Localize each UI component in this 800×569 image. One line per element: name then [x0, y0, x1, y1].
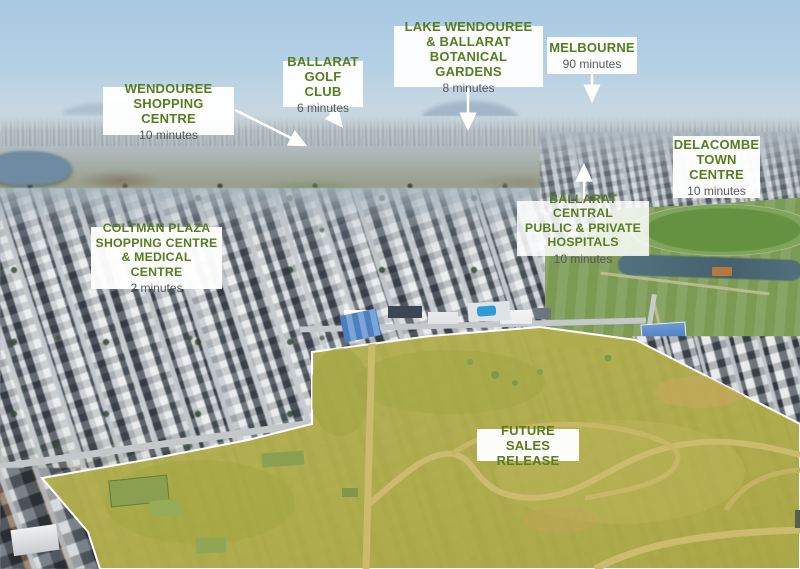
label-title-line: BALLARAT CENTRAL	[520, 192, 646, 221]
label-title-line: RELEASE	[497, 453, 560, 468]
label-lake-wendouree-botanical-gardens: LAKE WENDOUREE & BALLARAT BOTANICAL GARD…	[394, 26, 543, 87]
label-title-line: GOLF CLUB	[286, 69, 360, 99]
label-title-line: COLTMAN PLAZA	[103, 221, 211, 236]
label-title-line: & BALLARAT	[426, 34, 511, 49]
label-title-line: TOWN	[696, 152, 736, 167]
label-title-line: DELACOMBE	[674, 137, 760, 152]
label-ballarat-golf-club: BALLARAT GOLF CLUB 6 minutes	[283, 61, 363, 107]
label-title-line: MELBOURNE	[549, 40, 635, 55]
label-drive-time: 10 minutes	[554, 253, 613, 266]
label-title-line: SHOPPING CENTRE	[96, 236, 218, 251]
label-wendouree-shopping-centre: WENDOUREE SHOPPING CENTRE 10 minutes	[103, 87, 234, 135]
label-title-line: CENTRE	[689, 167, 744, 182]
arrow-wendouree	[235, 110, 303, 144]
label-drive-time: 2 minutes	[130, 282, 182, 295]
label-drive-time: 10 minutes	[687, 185, 746, 198]
label-drive-time: 6 minutes	[297, 102, 349, 115]
label-title-line: HOSPITALS	[547, 235, 618, 250]
label-title-line: WENDOUREE	[125, 81, 213, 96]
label-title-line: BALLARAT	[287, 54, 358, 69]
label-future-sales-release: FUTURE SALES RELEASE	[477, 429, 579, 461]
label-drive-time: 10 minutes	[139, 129, 198, 142]
label-title-line: FUTURE SALES	[480, 423, 576, 453]
label-title-line: LAKE WENDOUREE	[405, 19, 533, 34]
label-melbourne: MELBOURNE 90 minutes	[547, 37, 637, 74]
label-delacombe-town-centre: DELACOMBE TOWN CENTRE 10 minutes	[673, 136, 760, 198]
label-title-line: PUBLIC & PRIVATE	[525, 221, 641, 236]
label-title-line: SHOPPING CENTRE	[106, 96, 231, 126]
future-sales-highlight-zone	[42, 327, 800, 569]
label-title-line: BOTANICAL GARDENS	[397, 49, 540, 79]
label-coltman-plaza: COLTMAN PLAZA SHOPPING CENTRE & MEDICAL …	[91, 227, 222, 289]
aerial-map: WENDOUREE SHOPPING CENTRE 10 minutes BAL…	[0, 0, 800, 569]
label-drive-time: 8 minutes	[442, 82, 494, 95]
label-ballarat-central-hospitals: BALLARAT CENTRAL PUBLIC & PRIVATE HOSPIT…	[517, 201, 649, 256]
label-drive-time: 90 minutes	[563, 58, 622, 71]
label-title-line: & MEDICAL CENTRE	[94, 250, 219, 279]
